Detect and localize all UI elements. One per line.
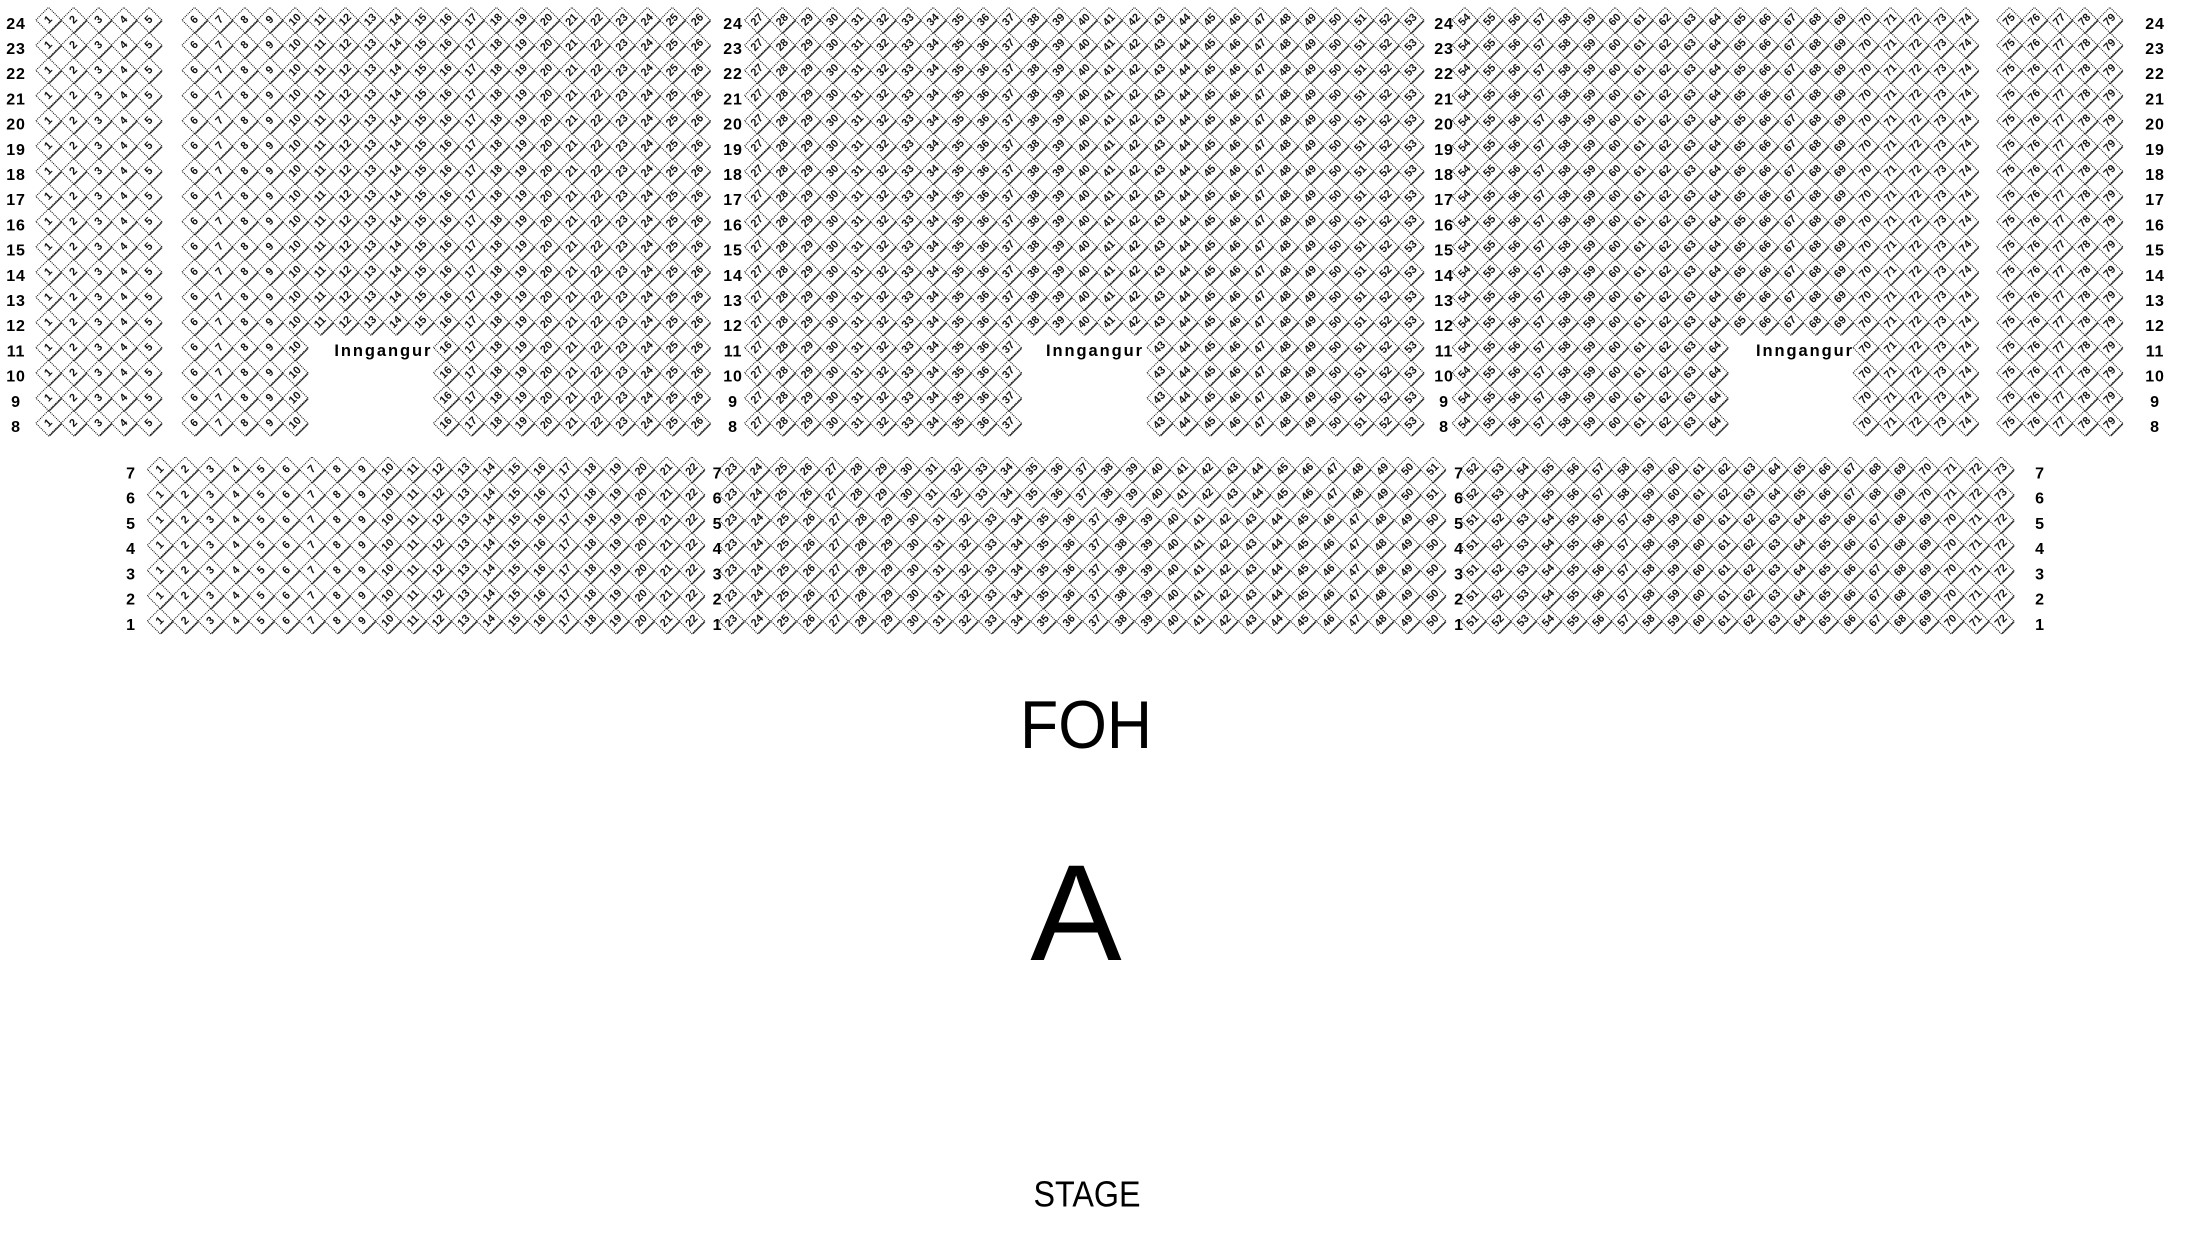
svg-text:4: 4 [117, 63, 130, 76]
svg-text:8: 8 [238, 316, 251, 329]
svg-text:11: 11 [312, 188, 329, 205]
svg-text:7: 7 [213, 89, 226, 102]
svg-text:2: 2 [67, 165, 80, 178]
svg-text:2: 2 [67, 266, 80, 279]
svg-text:2: 2 [67, 291, 80, 304]
svg-text:2: 2 [67, 341, 80, 354]
svg-text:6: 6 [188, 165, 201, 178]
svg-text:9: 9 [264, 89, 277, 102]
svg-text:4: 4 [117, 89, 130, 102]
svg-text:8: 8 [238, 64, 251, 77]
svg-text:3: 3 [92, 341, 105, 354]
svg-text:4: 4 [117, 240, 130, 253]
svg-text:1: 1 [42, 341, 55, 354]
svg-text:3: 3 [204, 514, 217, 527]
svg-text:10: 10 [2145, 369, 2164, 386]
svg-text:1: 1 [42, 114, 55, 127]
svg-text:18: 18 [723, 167, 742, 184]
svg-text:11: 11 [312, 213, 329, 230]
svg-text:5: 5 [143, 240, 156, 253]
svg-text:17: 17 [723, 192, 742, 209]
svg-text:5: 5 [143, 316, 156, 329]
svg-text:11: 11 [405, 486, 422, 503]
svg-text:8: 8 [238, 190, 251, 203]
svg-text:4: 4 [117, 164, 130, 177]
svg-text:2: 2 [179, 488, 192, 501]
svg-text:6: 6 [280, 539, 293, 552]
svg-text:23: 23 [6, 41, 25, 58]
svg-text:3: 3 [204, 615, 217, 628]
svg-text:20: 20 [6, 117, 25, 134]
svg-text:9: 9 [356, 539, 369, 552]
svg-text:22: 22 [6, 66, 25, 83]
svg-text:4: 4 [117, 366, 130, 379]
svg-text:9: 9 [264, 291, 277, 304]
svg-text:5: 5 [143, 366, 156, 379]
svg-text:5: 5 [143, 417, 156, 430]
svg-text:1: 1 [42, 392, 55, 405]
svg-text:4: 4 [117, 265, 130, 278]
svg-text:8: 8 [238, 341, 251, 354]
svg-text:9: 9 [728, 394, 738, 411]
svg-text:8: 8 [238, 89, 251, 102]
svg-text:13: 13 [1434, 293, 1453, 310]
svg-text:21: 21 [723, 91, 742, 108]
svg-text:3: 3 [92, 39, 105, 52]
svg-text:18: 18 [1434, 167, 1453, 184]
svg-text:7: 7 [213, 140, 226, 153]
svg-text:11: 11 [405, 613, 422, 630]
svg-text:7: 7 [213, 215, 226, 228]
svg-text:2: 2 [126, 592, 136, 609]
svg-text:18: 18 [2145, 167, 2164, 184]
svg-text:6: 6 [188, 266, 201, 279]
svg-text:3: 3 [204, 488, 217, 501]
svg-text:6: 6 [188, 291, 201, 304]
svg-text:9: 9 [356, 615, 369, 628]
svg-text:2: 2 [67, 417, 80, 430]
svg-text:8: 8 [238, 215, 251, 228]
svg-text:1: 1 [42, 14, 55, 27]
svg-text:8: 8 [331, 564, 344, 577]
svg-text:3: 3 [92, 140, 105, 153]
svg-text:5: 5 [143, 14, 156, 27]
svg-text:1: 1 [126, 617, 136, 634]
svg-text:21: 21 [2145, 91, 2164, 108]
svg-text:23: 23 [1434, 41, 1453, 58]
svg-text:9: 9 [264, 240, 277, 253]
svg-text:7: 7 [213, 240, 226, 253]
svg-text:5: 5 [143, 341, 156, 354]
svg-text:9: 9 [264, 114, 277, 127]
svg-text:1: 1 [42, 316, 55, 329]
svg-text:9: 9 [264, 64, 277, 77]
svg-text:6: 6 [188, 366, 201, 379]
svg-text:6: 6 [126, 491, 136, 508]
svg-text:2: 2 [2035, 592, 2045, 609]
svg-text:11: 11 [312, 87, 329, 104]
svg-text:3: 3 [126, 566, 136, 583]
svg-text:7: 7 [213, 266, 226, 279]
svg-text:15: 15 [1434, 243, 1453, 260]
svg-text:8: 8 [331, 463, 344, 476]
svg-text:1: 1 [42, 417, 55, 430]
svg-text:9: 9 [264, 140, 277, 153]
svg-text:24: 24 [2145, 16, 2164, 33]
svg-text:11: 11 [312, 314, 329, 331]
svg-text:5: 5 [126, 516, 136, 533]
svg-text:4: 4 [230, 614, 243, 627]
svg-text:1: 1 [42, 165, 55, 178]
svg-text:5: 5 [143, 392, 156, 405]
svg-text:20: 20 [2145, 117, 2164, 134]
svg-text:8: 8 [728, 419, 738, 436]
svg-text:4: 4 [117, 290, 130, 303]
svg-text:8: 8 [331, 539, 344, 552]
svg-text:8: 8 [331, 514, 344, 527]
svg-text:2: 2 [67, 215, 80, 228]
svg-text:17: 17 [1434, 192, 1453, 209]
svg-text:4: 4 [126, 541, 136, 558]
svg-text:A: A [1030, 837, 1122, 990]
svg-text:16: 16 [6, 217, 25, 234]
svg-text:8: 8 [238, 266, 251, 279]
svg-text:2: 2 [67, 89, 80, 102]
svg-text:7: 7 [213, 39, 226, 52]
svg-text:9: 9 [1439, 394, 1449, 411]
svg-text:9: 9 [264, 366, 277, 379]
svg-text:11: 11 [7, 343, 26, 360]
svg-text:3: 3 [204, 539, 217, 552]
svg-text:6: 6 [280, 615, 293, 628]
svg-text:6: 6 [280, 589, 293, 602]
svg-text:7: 7 [213, 316, 226, 329]
svg-text:3: 3 [92, 14, 105, 27]
svg-text:13: 13 [2145, 293, 2164, 310]
svg-text:10: 10 [723, 369, 742, 386]
svg-text:6: 6 [280, 463, 293, 476]
svg-text:3: 3 [92, 215, 105, 228]
svg-text:2: 2 [67, 39, 80, 52]
svg-text:20: 20 [723, 117, 742, 134]
svg-text:3: 3 [92, 89, 105, 102]
svg-text:14: 14 [6, 268, 25, 285]
svg-text:9: 9 [264, 190, 277, 203]
svg-text:11: 11 [312, 112, 329, 129]
svg-text:9: 9 [356, 564, 369, 577]
svg-text:13: 13 [723, 293, 742, 310]
svg-text:1: 1 [42, 240, 55, 253]
svg-text:5: 5 [143, 140, 156, 153]
svg-text:7: 7 [306, 539, 319, 552]
svg-text:21: 21 [1434, 91, 1453, 108]
svg-text:2: 2 [179, 463, 192, 476]
svg-text:6: 6 [188, 39, 201, 52]
svg-text:9: 9 [264, 316, 277, 329]
svg-text:8: 8 [238, 366, 251, 379]
svg-text:20: 20 [1434, 117, 1453, 134]
svg-text:4: 4 [230, 589, 243, 602]
svg-text:4: 4 [117, 341, 130, 354]
svg-text:8: 8 [331, 488, 344, 501]
svg-text:5: 5 [2035, 516, 2045, 533]
svg-text:1: 1 [42, 190, 55, 203]
svg-text:9: 9 [11, 394, 21, 411]
svg-text:15: 15 [2145, 243, 2164, 260]
svg-text:Inngangur: Inngangur [1756, 342, 1853, 360]
svg-text:1: 1 [42, 291, 55, 304]
svg-text:5: 5 [143, 190, 156, 203]
svg-text:5: 5 [255, 488, 268, 501]
svg-text:1: 1 [42, 89, 55, 102]
svg-text:5: 5 [143, 39, 156, 52]
svg-text:11: 11 [724, 343, 743, 360]
svg-text:2: 2 [67, 114, 80, 127]
svg-text:8: 8 [238, 14, 251, 27]
svg-text:1: 1 [154, 539, 167, 552]
svg-text:2: 2 [179, 564, 192, 577]
svg-text:7: 7 [213, 114, 226, 127]
svg-text:4: 4 [117, 315, 130, 328]
svg-text:3: 3 [92, 190, 105, 203]
svg-text:5: 5 [255, 463, 268, 476]
svg-text:2: 2 [67, 190, 80, 203]
svg-text:4: 4 [230, 538, 243, 551]
svg-text:11: 11 [312, 264, 329, 281]
svg-text:7: 7 [306, 463, 319, 476]
svg-text:23: 23 [2145, 41, 2164, 58]
svg-text:11: 11 [312, 37, 329, 54]
svg-text:17: 17 [6, 192, 25, 209]
svg-text:8: 8 [238, 392, 251, 405]
svg-text:9: 9 [264, 14, 277, 27]
svg-text:8: 8 [1439, 419, 1449, 436]
svg-text:17: 17 [2145, 192, 2164, 209]
svg-text:1: 1 [2035, 617, 2045, 634]
svg-text:11: 11 [312, 238, 329, 255]
svg-text:7: 7 [213, 366, 226, 379]
svg-text:7: 7 [306, 564, 319, 577]
svg-text:6: 6 [188, 64, 201, 77]
svg-text:24: 24 [1434, 16, 1453, 33]
svg-text:8: 8 [331, 615, 344, 628]
svg-text:9: 9 [264, 392, 277, 405]
svg-text:11: 11 [405, 562, 422, 579]
svg-text:11: 11 [1435, 343, 1454, 360]
svg-text:Inngangur: Inngangur [1046, 342, 1143, 360]
svg-text:1: 1 [154, 463, 167, 476]
svg-text:4: 4 [117, 139, 130, 152]
svg-text:11: 11 [405, 512, 422, 529]
svg-text:6: 6 [188, 240, 201, 253]
svg-text:1: 1 [42, 64, 55, 77]
svg-text:3: 3 [204, 564, 217, 577]
svg-text:11: 11 [405, 461, 422, 478]
svg-text:8: 8 [238, 417, 251, 430]
svg-text:3: 3 [204, 589, 217, 602]
svg-text:1: 1 [154, 488, 167, 501]
svg-text:2: 2 [67, 140, 80, 153]
svg-text:2: 2 [67, 366, 80, 379]
svg-text:7: 7 [126, 465, 136, 482]
svg-text:1: 1 [42, 366, 55, 379]
svg-text:14: 14 [723, 268, 742, 285]
svg-text:7: 7 [213, 341, 226, 354]
svg-text:5: 5 [143, 215, 156, 228]
svg-text:8: 8 [238, 240, 251, 253]
svg-text:23: 23 [723, 41, 742, 58]
svg-text:4: 4 [117, 215, 130, 228]
svg-text:12: 12 [6, 318, 25, 335]
svg-text:6: 6 [188, 140, 201, 153]
svg-text:8: 8 [2150, 419, 2160, 436]
svg-text:21: 21 [6, 91, 25, 108]
svg-text:4: 4 [230, 462, 243, 475]
svg-text:4: 4 [117, 189, 130, 202]
svg-text:7: 7 [213, 190, 226, 203]
svg-text:4: 4 [230, 513, 243, 526]
svg-text:6: 6 [280, 564, 293, 577]
svg-text:2: 2 [179, 589, 192, 602]
svg-text:7: 7 [213, 64, 226, 77]
svg-text:11: 11 [405, 587, 422, 604]
svg-text:FOH: FOH [1020, 687, 1152, 763]
svg-text:8: 8 [238, 291, 251, 304]
svg-text:5: 5 [143, 165, 156, 178]
svg-text:8: 8 [331, 589, 344, 602]
svg-text:8: 8 [238, 140, 251, 153]
svg-text:3: 3 [92, 366, 105, 379]
svg-text:2: 2 [67, 14, 80, 27]
svg-text:3: 3 [92, 291, 105, 304]
svg-text:6: 6 [188, 392, 201, 405]
svg-text:8: 8 [11, 419, 21, 436]
svg-text:11: 11 [405, 537, 422, 554]
svg-text:14: 14 [2145, 268, 2164, 285]
svg-text:4: 4 [117, 391, 130, 404]
svg-text:3: 3 [92, 240, 105, 253]
svg-text:3: 3 [92, 417, 105, 430]
svg-text:7: 7 [213, 14, 226, 27]
svg-text:9: 9 [356, 488, 369, 501]
svg-text:2: 2 [67, 64, 80, 77]
svg-text:7: 7 [213, 392, 226, 405]
svg-text:1: 1 [154, 589, 167, 602]
svg-text:2: 2 [67, 240, 80, 253]
svg-text:1: 1 [154, 564, 167, 577]
svg-text:19: 19 [723, 142, 742, 159]
svg-text:10: 10 [1434, 369, 1453, 386]
svg-text:3: 3 [204, 463, 217, 476]
svg-text:2: 2 [179, 615, 192, 628]
svg-text:16: 16 [723, 217, 742, 234]
svg-text:14: 14 [1434, 268, 1453, 285]
svg-text:Inngangur: Inngangur [334, 342, 431, 360]
svg-text:19: 19 [1434, 142, 1453, 159]
svg-text:4: 4 [2035, 541, 2045, 558]
svg-text:5: 5 [143, 291, 156, 304]
svg-text:24: 24 [723, 16, 742, 33]
svg-text:2: 2 [67, 316, 80, 329]
svg-text:5: 5 [143, 114, 156, 127]
svg-text:1: 1 [42, 39, 55, 52]
svg-text:12: 12 [1434, 318, 1453, 335]
svg-text:9: 9 [264, 341, 277, 354]
svg-text:9: 9 [264, 165, 277, 178]
svg-text:5: 5 [143, 64, 156, 77]
svg-text:11: 11 [312, 289, 329, 306]
svg-text:3: 3 [92, 64, 105, 77]
svg-text:6: 6 [2035, 491, 2045, 508]
svg-text:11: 11 [312, 163, 329, 180]
svg-text:8: 8 [238, 114, 251, 127]
svg-text:9: 9 [2150, 394, 2160, 411]
svg-text:4: 4 [230, 563, 243, 576]
svg-text:15: 15 [6, 243, 25, 260]
svg-text:22: 22 [2145, 66, 2164, 83]
svg-text:STAGE: STAGE [1034, 1174, 1141, 1215]
svg-text:19: 19 [2145, 142, 2164, 159]
svg-text:3: 3 [92, 114, 105, 127]
svg-text:4: 4 [117, 416, 130, 429]
svg-text:9: 9 [264, 215, 277, 228]
svg-text:6: 6 [188, 89, 201, 102]
svg-text:1: 1 [154, 615, 167, 628]
svg-text:6: 6 [188, 14, 201, 27]
svg-text:7: 7 [306, 488, 319, 501]
svg-text:6: 6 [280, 514, 293, 527]
svg-text:4: 4 [117, 13, 130, 26]
svg-text:3: 3 [92, 316, 105, 329]
svg-text:12: 12 [2145, 318, 2164, 335]
svg-text:3: 3 [2035, 566, 2045, 583]
svg-text:6: 6 [188, 417, 201, 430]
svg-text:5: 5 [143, 266, 156, 279]
svg-text:22: 22 [1434, 66, 1453, 83]
svg-text:1: 1 [42, 215, 55, 228]
svg-text:11: 11 [312, 138, 329, 155]
svg-text:6: 6 [188, 316, 201, 329]
svg-text:6: 6 [280, 488, 293, 501]
svg-text:5: 5 [255, 589, 268, 602]
svg-text:9: 9 [356, 514, 369, 527]
svg-text:7: 7 [306, 589, 319, 602]
svg-text:9: 9 [356, 589, 369, 602]
svg-text:1: 1 [154, 514, 167, 527]
svg-text:7: 7 [213, 165, 226, 178]
svg-text:9: 9 [264, 39, 277, 52]
svg-text:11: 11 [312, 12, 329, 29]
svg-text:19: 19 [6, 142, 25, 159]
svg-text:6: 6 [188, 114, 201, 127]
svg-text:7: 7 [306, 615, 319, 628]
svg-text:11: 11 [2146, 343, 2165, 360]
svg-text:6: 6 [188, 215, 201, 228]
svg-text:5: 5 [255, 514, 268, 527]
svg-text:1: 1 [42, 140, 55, 153]
svg-text:3: 3 [92, 266, 105, 279]
svg-text:8: 8 [238, 39, 251, 52]
svg-text:7: 7 [306, 514, 319, 527]
svg-text:24: 24 [6, 16, 25, 33]
svg-text:4: 4 [117, 114, 130, 127]
svg-text:7: 7 [213, 417, 226, 430]
svg-text:22: 22 [723, 66, 742, 83]
svg-text:5: 5 [255, 615, 268, 628]
svg-text:3: 3 [92, 392, 105, 405]
svg-text:4: 4 [230, 488, 243, 501]
svg-text:5: 5 [255, 564, 268, 577]
